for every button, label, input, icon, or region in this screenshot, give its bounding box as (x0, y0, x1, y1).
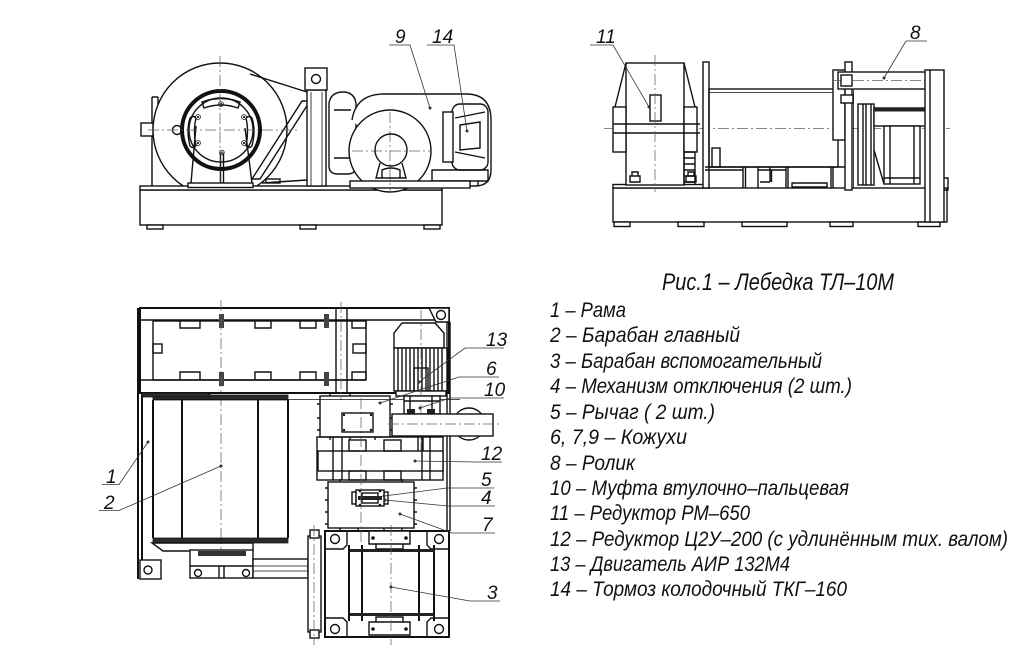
svg-text:6, 7,9 – Кожухи: 6, 7,9 – Кожухи (550, 426, 687, 449)
svg-text:4 – Механизм отключения (2 шт.: 4 – Механизм отключения (2 шт.) (550, 375, 852, 398)
svg-text:14 – Тормоз колодочный ТКГ–160: 14 – Тормоз колодочный ТКГ–160 (550, 578, 847, 601)
svg-text:Рис.1 – Лебедка ТЛ–10М: Рис.1 – Лебедка ТЛ–10М (662, 269, 894, 296)
svg-text:5 – Рычаг ( 2 шт.): 5 – Рычаг ( 2 шт.) (550, 401, 715, 424)
svg-text:1 – Рама: 1 – Рама (550, 299, 626, 322)
svg-text:8 – Ролик: 8 – Ролик (550, 452, 636, 475)
svg-text:12 – Редуктор Ц2У–200 (с удлин: 12 – Редуктор Ц2У–200 (с удлинённым тих.… (550, 528, 1008, 551)
svg-text:11 – Редуктор РМ–650: 11 – Редуктор РМ–650 (550, 502, 750, 525)
svg-text:3 – Барабан вспомогательный: 3 – Барабан вспомогательный (550, 350, 822, 373)
svg-text:2 – Барабан главный: 2 – Барабан главный (549, 324, 740, 347)
svg-text:13 – Двигатель АИР 132М4: 13 – Двигатель АИР 132М4 (550, 553, 790, 576)
svg-text:10 – Муфта втулочно–пальцевая: 10 – Муфта втулочно–пальцевая (550, 477, 849, 500)
